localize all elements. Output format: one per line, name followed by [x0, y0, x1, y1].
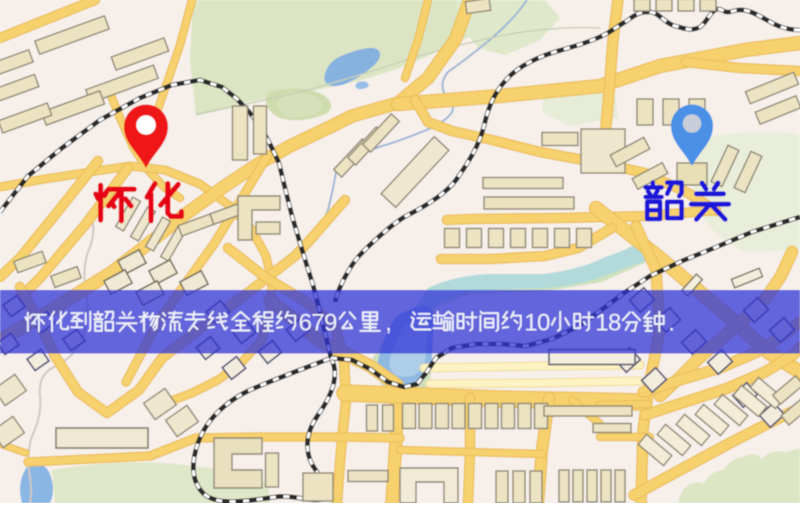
svg-text:9: 9: [324, 310, 337, 337]
svg-text:7: 7: [311, 310, 324, 337]
svg-text:1: 1: [595, 310, 608, 337]
svg-text:1: 1: [524, 310, 537, 337]
svg-text:,: ,: [385, 310, 392, 337]
svg-text:8: 8: [608, 310, 621, 337]
svg-text:6: 6: [299, 310, 312, 337]
svg-text:.: .: [668, 310, 675, 337]
svg-text:0: 0: [537, 310, 550, 337]
